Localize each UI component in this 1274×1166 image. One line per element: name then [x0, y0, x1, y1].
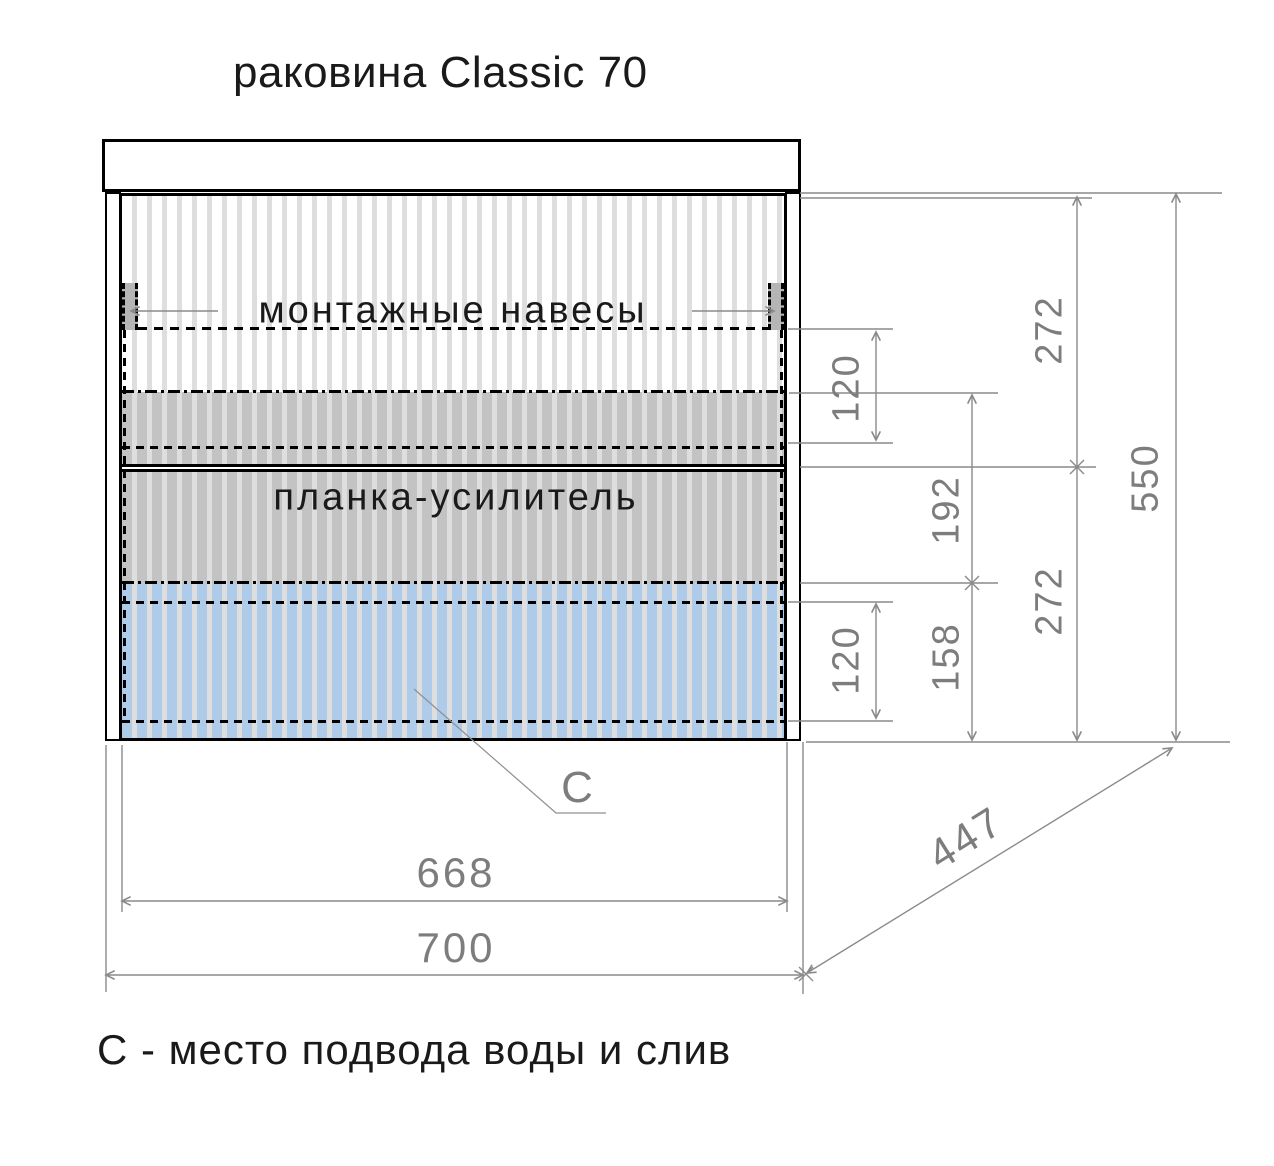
- dim-inner-width: 668: [416, 849, 495, 897]
- dim-depth: 447: [920, 797, 1012, 880]
- dim-reinforcement-span: 192: [926, 475, 969, 544]
- technical-drawing-canvas: раковина Classic 70: [0, 0, 1274, 1166]
- dim-top-door-height: 272: [1029, 295, 1072, 364]
- gray-zone-upper: [122, 392, 784, 464]
- gray-zone-inner-line: [122, 446, 784, 449]
- edge-dashed-line-left: [123, 330, 126, 722]
- blue-zone-top-line: [122, 581, 784, 584]
- cabinet-front: [119, 193, 787, 741]
- dim-drain-band: 120: [826, 625, 869, 694]
- connection-point-label: C: [561, 763, 593, 813]
- dim-overall-width: 700: [416, 924, 495, 972]
- edge-dashed-line-right: [780, 330, 783, 722]
- dim-bottom-door-height: 272: [1029, 566, 1072, 635]
- legend-note: С - место подвода воды и слив: [97, 1026, 731, 1074]
- mounting-hangers-label: монтажные навесы: [258, 290, 647, 333]
- dim-drain-zone-span: 158: [926, 622, 969, 691]
- water-connection-zone: [122, 583, 784, 738]
- door-divider: [122, 464, 784, 472]
- blue-band-lower-line: [122, 720, 784, 723]
- countertop: [102, 139, 801, 192]
- drawing-title: раковина Classic 70: [233, 48, 648, 98]
- blue-band-upper-line: [122, 601, 784, 604]
- dim-hanger-band-top: 120: [826, 353, 869, 422]
- reinforcement-bar-label: планка-усилитель: [273, 477, 638, 520]
- cabinet-front-face: [122, 196, 784, 738]
- side-panel-right: [785, 192, 801, 741]
- mounting-hanger-right: [768, 283, 784, 330]
- mounting-hanger-left: [122, 283, 138, 330]
- gray-zone-top-line: [122, 390, 784, 393]
- dim-total-height: 550: [1125, 443, 1168, 512]
